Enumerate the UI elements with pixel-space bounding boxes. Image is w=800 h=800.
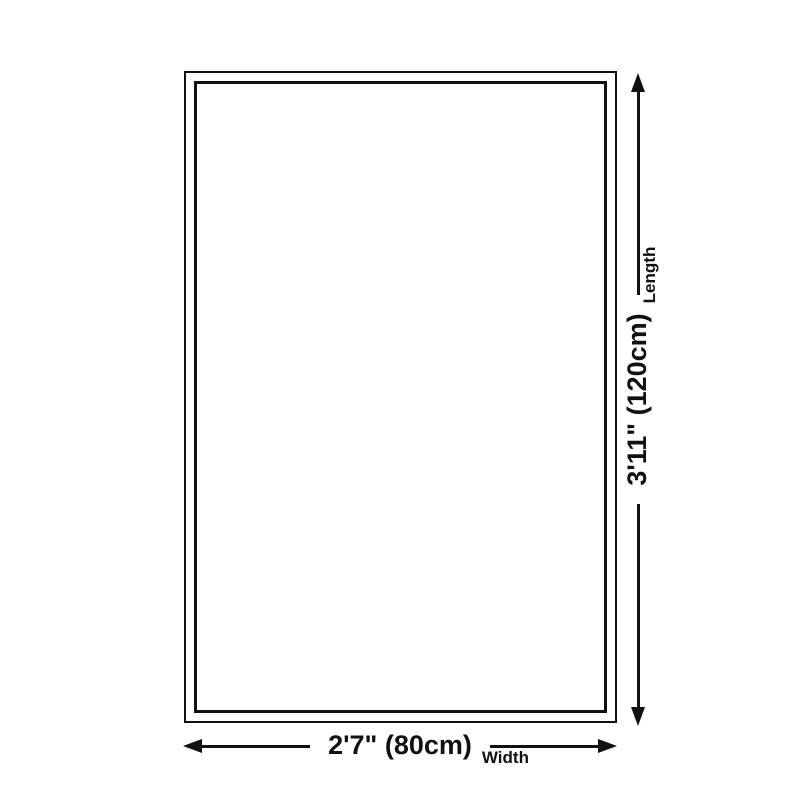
length-dimension: 3'11" (120cm) Length — [618, 73, 658, 726]
arrow-right-icon — [598, 739, 617, 753]
width-label-group: 2'7" (80cm) Width — [310, 731, 490, 761]
length-line-lower-segment — [637, 504, 640, 707]
width-dimension-assembly: 2'7" (80cm) Width — [183, 726, 617, 766]
length-label-group: 3'11" (120cm) Length — [623, 295, 653, 503]
width-value: 2'7" (80cm) — [328, 731, 472, 761]
arrow-left-icon — [183, 739, 202, 753]
length-dimension-assembly: 3'11" (120cm) Length — [618, 73, 658, 726]
arrow-up-icon — [631, 73, 645, 92]
arrow-down-icon — [631, 707, 645, 726]
size-diagram: 3'11" (120cm) Length 2'7" (80cm) Width — [0, 0, 800, 800]
length-value: 3'11" (120cm) — [623, 313, 653, 485]
width-line-left-segment — [202, 745, 310, 748]
rug-outline-outer — [184, 71, 617, 723]
length-label: Length — [641, 247, 658, 304]
width-label: Width — [482, 749, 529, 766]
rug-outline-inner — [194, 81, 607, 713]
width-dimension: 2'7" (80cm) Width — [183, 726, 617, 766]
